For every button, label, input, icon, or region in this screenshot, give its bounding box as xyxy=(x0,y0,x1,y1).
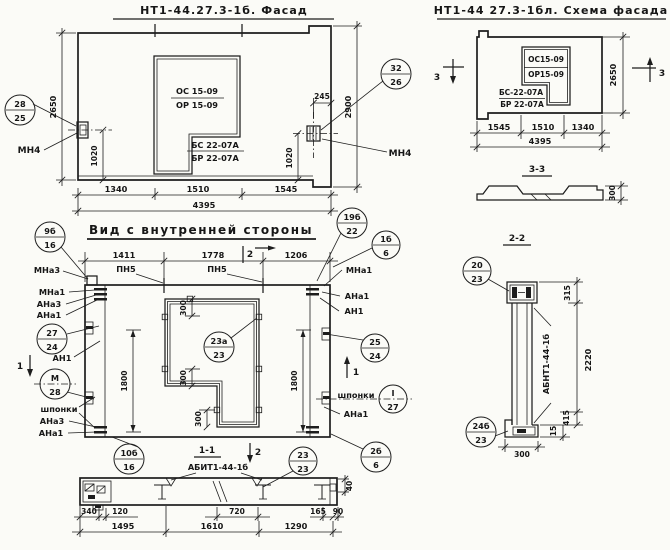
svg-text:19б: 19б xyxy=(343,212,360,222)
label-an1-left: АН1 xyxy=(53,353,72,363)
label-mna1-right: МНа1 xyxy=(346,265,373,275)
svg-text:1020: 1020 xyxy=(90,146,99,167)
facade-anchor-label-left: МН4 xyxy=(18,146,41,156)
inner-view-title: Вид с внутренней стороны xyxy=(89,223,313,237)
svg-text:1800: 1800 xyxy=(290,371,299,392)
scheme-drawing: НТ1-44 27.3-1бл. Схема фасада ОС15-09 ОР… xyxy=(434,4,669,205)
inner-section2-marker-top: 2 xyxy=(243,246,276,264)
svg-text:23: 23 xyxy=(213,350,225,360)
svg-text:1510: 1510 xyxy=(532,122,555,132)
svg-text:1545: 1545 xyxy=(488,122,511,132)
facade-window-mark-2: ОР 15-09 xyxy=(176,100,218,110)
scheme-window-mark-2: ОР15-09 xyxy=(528,70,564,79)
label-shponki-left: шпонки xyxy=(41,404,78,414)
svg-text:23: 23 xyxy=(297,464,309,474)
svg-text:2220: 2220 xyxy=(583,348,593,371)
svg-text:1411: 1411 xyxy=(113,250,136,260)
scheme-door-mark-2: БР 22-07А xyxy=(500,100,544,109)
svg-text:1: 1 xyxy=(17,362,23,372)
svg-text:16: 16 xyxy=(123,462,135,472)
svg-text:1495: 1495 xyxy=(112,521,135,531)
svg-text:4395: 4395 xyxy=(529,136,552,146)
scheme-window-mark-1: ОС15-09 xyxy=(528,55,564,64)
svg-text:2650: 2650 xyxy=(48,95,58,118)
section-1-1-title: 1-1 xyxy=(199,446,215,456)
svg-text:22: 22 xyxy=(346,226,357,236)
svg-text:6: 6 xyxy=(373,460,379,470)
svg-text:315: 315 xyxy=(563,285,572,301)
section-1-1-callout: 23 23 xyxy=(263,447,317,487)
inner-callout-1b6: 1б 6 xyxy=(333,231,400,267)
facade-callout-left: 28 25 xyxy=(5,95,76,126)
svg-text:2: 2 xyxy=(255,448,261,458)
svg-text:245: 245 xyxy=(314,92,330,101)
svg-text:23: 23 xyxy=(475,435,487,445)
svg-text:1340: 1340 xyxy=(572,122,595,132)
svg-text:2900: 2900 xyxy=(343,95,353,118)
section-1-1-label: АБИТ1-44-1б xyxy=(188,462,249,472)
facade-window: ОС 15-09 ОР 15-09 БС 22-07А БР 22-07А xyxy=(154,56,244,174)
scheme-dimensions: 2650 1545 1510 1340 4395 xyxy=(470,32,630,152)
pn5-label-2: ПН5 xyxy=(207,264,227,274)
label-shponki-right: шпонки xyxy=(338,390,375,400)
pn5-label-1: ПН5 xyxy=(116,264,136,274)
svg-text:20: 20 xyxy=(471,260,483,270)
svg-text:23: 23 xyxy=(297,450,309,460)
svg-text:2650: 2650 xyxy=(608,63,618,86)
svg-text:24: 24 xyxy=(369,351,381,361)
section-1-1-dimensions: 340 120 720 165 90 40 1495 1610 xyxy=(72,475,354,537)
label-ana1-left: АНа1 xyxy=(37,310,62,320)
section-2-2-body xyxy=(505,282,538,437)
svg-text:I: I xyxy=(391,388,394,398)
inner-window xyxy=(162,296,262,427)
section-3-3-title: 3-3 xyxy=(529,165,545,175)
svg-text:10б: 10б xyxy=(120,448,137,458)
inner-callout-23a23: 23а 23 xyxy=(204,318,257,362)
svg-text:27: 27 xyxy=(46,328,58,338)
svg-text:6: 6 xyxy=(383,248,389,258)
svg-text:28: 28 xyxy=(49,387,61,397)
facade-window-mark-1: ОС 15-09 xyxy=(176,86,218,96)
inner-section1-marker-left: 1 xyxy=(17,355,33,377)
svg-text:1510: 1510 xyxy=(187,184,210,194)
svg-text:2б: 2б xyxy=(370,446,382,456)
svg-text:24: 24 xyxy=(46,342,58,352)
svg-text:340: 340 xyxy=(81,507,97,516)
svg-text:300: 300 xyxy=(194,411,203,427)
scheme-section-marker-left: 3 xyxy=(434,59,464,84)
label-ana3-left-bottom: АНа3 xyxy=(40,416,65,426)
svg-text:27: 27 xyxy=(387,402,399,412)
svg-text:4395: 4395 xyxy=(193,200,216,210)
svg-text:М: М xyxy=(51,373,59,383)
svg-text:415: 415 xyxy=(562,410,571,426)
svg-text:90: 90 xyxy=(333,507,343,516)
svg-text:720: 720 xyxy=(229,507,245,516)
svg-text:25: 25 xyxy=(369,337,381,347)
svg-text:23а: 23а xyxy=(211,336,228,346)
inner-window-dimensions: 300 300 300 xyxy=(179,296,215,430)
section-2-2-label: АБНТ1-44-1б xyxy=(541,334,551,395)
svg-text:1б: 1б xyxy=(380,234,392,244)
svg-text:1545: 1545 xyxy=(275,184,298,194)
section-2-2-callout-top: 20 23 xyxy=(463,257,509,291)
section-2-2-callout-bottom: 24б 23 xyxy=(466,417,508,447)
label-ana1-right-bottom: АНа1 xyxy=(344,409,369,419)
drawing-sheet: НТ1-44.27.3-1б. Фасад ОС 15-09 ОР 15-09 … xyxy=(0,0,670,550)
svg-text:300: 300 xyxy=(179,300,188,316)
svg-text:1778: 1778 xyxy=(202,250,225,260)
svg-text:24б: 24б xyxy=(472,421,489,431)
section-2-2: 2-2 20 23 АБНТ1-44-1б xyxy=(463,234,593,459)
svg-text:1610: 1610 xyxy=(201,521,224,531)
svg-text:300: 300 xyxy=(608,185,617,201)
scheme-door-mark-1: БС-22-07А xyxy=(499,88,543,97)
svg-text:120: 120 xyxy=(112,507,128,516)
svg-text:15: 15 xyxy=(549,426,558,436)
label-ana3-left: АНа3 xyxy=(37,299,62,309)
svg-text:32: 32 xyxy=(390,63,401,73)
svg-text:1290: 1290 xyxy=(285,521,308,531)
scheme-window: ОС15-09 ОР15-09 БС-22-07А БР 22-07А xyxy=(499,47,570,109)
inner-section1-marker-right: 1 xyxy=(344,356,359,378)
label-an1-right: АН1 xyxy=(345,306,364,316)
svg-text:25: 25 xyxy=(14,113,26,123)
facade-anchor-label-right: МН4 xyxy=(389,149,412,159)
inner-callout-2524: 25 24 xyxy=(326,334,389,362)
scheme-title: НТ1-44 27.3-1бл. Схема фасада xyxy=(434,4,669,17)
inner-callout-2724: 27 24 xyxy=(37,324,99,354)
section-3-3: 3-3 300 xyxy=(477,165,628,205)
facade-drawing: НТ1-44.27.3-1б. Фасад ОС 15-09 ОР 15-09 … xyxy=(5,4,411,216)
label-mna3: МНа3 xyxy=(34,265,61,275)
facade-title: НТ1-44.27.3-1б. Фасад xyxy=(140,4,308,17)
facade-door-mark-1: БС 22-07А xyxy=(191,140,239,150)
svg-text:16: 16 xyxy=(44,240,56,250)
svg-text:3: 3 xyxy=(659,69,665,79)
label-ana1-left-bottom: АНа1 xyxy=(39,428,64,438)
svg-text:300: 300 xyxy=(179,370,188,386)
svg-text:28: 28 xyxy=(14,99,26,109)
blueprint-canvas: НТ1-44.27.3-1б. Фасад ОС 15-09 ОР 15-09 … xyxy=(0,0,670,550)
section-2-2-title: 2-2 xyxy=(509,234,525,244)
svg-text:1206: 1206 xyxy=(285,250,308,260)
svg-text:1340: 1340 xyxy=(105,184,128,194)
svg-text:2: 2 xyxy=(247,250,253,260)
svg-text:9б: 9б xyxy=(44,226,56,236)
inner-callout-2b6: 2б 6 xyxy=(331,434,391,472)
svg-text:23: 23 xyxy=(471,274,483,284)
label-ana1-right: АНа1 xyxy=(345,291,370,301)
svg-text:1020: 1020 xyxy=(285,148,294,169)
svg-text:1: 1 xyxy=(353,368,359,378)
inner-callout-10b16: 10б 16 xyxy=(112,437,144,474)
svg-text:26: 26 xyxy=(390,77,402,87)
inner-view-drawing: Вид с внутренней стороны 9б 16 1411 1778… xyxy=(17,208,412,474)
facade-callout-right: 32 26 xyxy=(321,59,411,130)
svg-text:300: 300 xyxy=(514,450,530,459)
svg-text:165: 165 xyxy=(310,507,326,516)
facade-left-anchor xyxy=(68,122,112,138)
svg-text:1800: 1800 xyxy=(120,371,129,392)
svg-text:40: 40 xyxy=(345,481,354,491)
facade-door-mark-2: БР 22-07А xyxy=(191,153,239,163)
scheme-section-marker-right: 3 xyxy=(632,57,665,82)
section2-marker-bottom: 2 xyxy=(247,443,261,463)
section-1-1-body xyxy=(80,478,337,510)
svg-text:3: 3 xyxy=(434,73,440,83)
label-mna1-left: МНа1 xyxy=(39,287,66,297)
